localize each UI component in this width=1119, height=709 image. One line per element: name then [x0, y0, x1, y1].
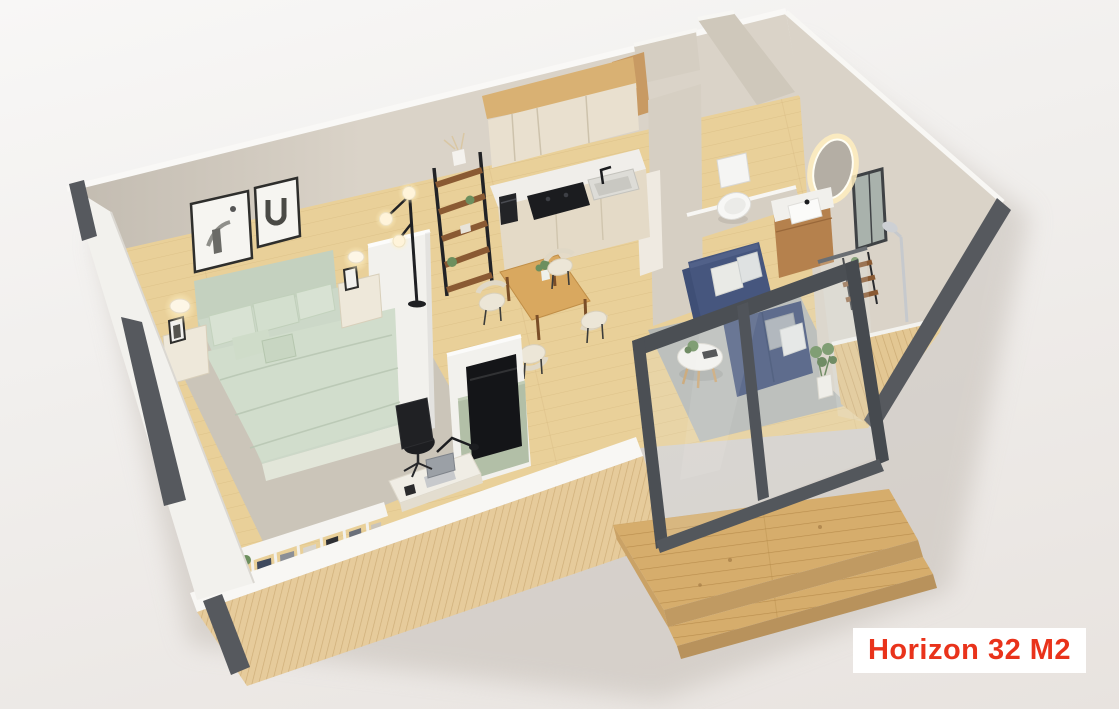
- floor-plan-label: Horizon 32 M2: [853, 628, 1086, 673]
- wall-art-frame-left: [191, 191, 252, 272]
- wall-art-frame-right: [255, 178, 300, 247]
- floorplan-render: Horizon 32 M2: [0, 0, 1119, 709]
- render-canvas: [0, 0, 1119, 709]
- table-lamp: [348, 251, 364, 263]
- bathroom-window: [853, 169, 886, 249]
- plant-pot: [452, 149, 466, 166]
- floor-plan-label-text: Horizon 32 M2: [868, 634, 1071, 667]
- coffee-machine: [499, 193, 518, 225]
- basin-faucet-icon: [805, 200, 810, 205]
- table-lamp: [170, 299, 190, 313]
